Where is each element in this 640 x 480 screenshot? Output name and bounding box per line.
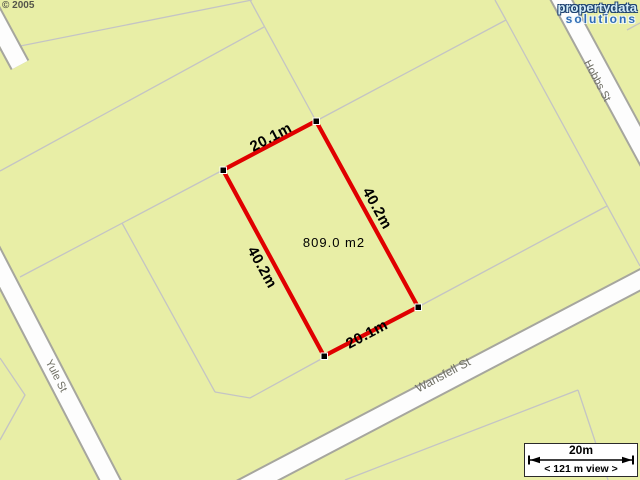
parcel-boundary-line	[316, 20, 506, 121]
corner-marker	[321, 353, 328, 360]
corner-marker	[220, 167, 227, 174]
parcel-boundary-line	[215, 358, 323, 398]
corner-marker	[313, 118, 320, 125]
parcel-boundary-line	[0, 27, 264, 171]
propertydata-logo: propertydata solutions	[558, 1, 637, 26]
parcel-boundary-line	[495, 0, 506, 20]
parcel-boundary-line	[0, 0, 252, 50]
copyright-text: © 2005	[2, 0, 34, 11]
scale-view-label: < 121 m view >	[525, 464, 637, 475]
parcel-boundary-line	[418, 206, 607, 307]
road-yule-st	[0, 249, 122, 480]
parcel-boundary-line	[20, 170, 223, 277]
corner-marker	[415, 304, 422, 311]
parcel-boundary-line	[0, 358, 25, 440]
parcel-boundary-line	[122, 223, 215, 392]
logo-line2: solutions	[558, 13, 637, 26]
scale-bar: 20m < 121 m view >	[524, 443, 638, 477]
parcel-boundary-line	[250, 0, 316, 121]
parcel-boundary-line	[506, 20, 640, 266]
map-viewport[interactable]: 20.1m 40.2m 20.1m 40.2m 809.0 m2 Yule St…	[0, 0, 640, 480]
parcel-area-label: 809.0 m2	[292, 235, 376, 250]
